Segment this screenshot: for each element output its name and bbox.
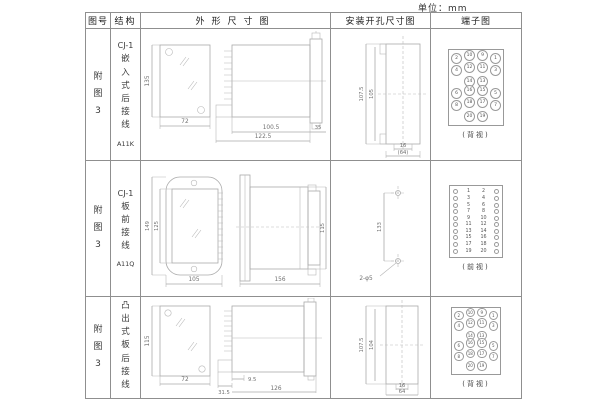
terminal-pin: 1 — [490, 53, 501, 64]
structure-cell-row3: CJ-1 凸出式板后接线 A11H — [111, 297, 141, 398]
dim-install-v2: 104 — [369, 339, 375, 350]
fig-cell-row2: 附图3 — [86, 161, 111, 297]
terminal-row: 14 13 — [454, 331, 498, 341]
terminal-pin: 17 — [477, 349, 487, 359]
terminal-pin: 2 — [451, 53, 462, 64]
fig-number: 附图3 — [92, 69, 105, 120]
terminal-number: 19 — [464, 249, 473, 254]
terminal-pin: 9 — [477, 50, 488, 61]
terminal-number: 9 — [464, 216, 473, 221]
terminal-pin: 16 — [464, 85, 475, 96]
terminal-hole — [453, 249, 458, 254]
terminal-pin: 3 — [489, 321, 499, 331]
terminal-hole — [453, 203, 458, 208]
terminal-row: 6 16 15 5 — [454, 341, 498, 351]
terminal-number: 11 — [464, 222, 473, 227]
dim-side-length: 126 — [270, 386, 281, 392]
terminal-hole — [494, 216, 499, 221]
dim-front-width: 72 — [181, 119, 189, 125]
terminal-row: 4 12 11 3 — [451, 65, 501, 76]
terminal-hole — [453, 189, 458, 194]
terminal-view-label: (背视) — [462, 379, 489, 389]
model-prefix: CJ-1 — [118, 41, 134, 50]
terminal-pin: 4 — [454, 321, 464, 331]
header-fig: 图号 — [86, 13, 111, 29]
terminal-hole — [494, 249, 499, 254]
terminal-row: 2 10 9 1 — [451, 53, 501, 64]
terminal-number: 5 — [464, 203, 473, 208]
terminal-pin: 3 — [490, 65, 501, 76]
terminal-cell-row2: 12 34 56 78 910 1112 1314 1516 1718 1920… — [431, 161, 521, 297]
terminal-pin: 8 — [454, 352, 464, 362]
terminal-hole — [494, 229, 499, 234]
terminal-hole — [453, 209, 458, 214]
terminal-row: 20 19 — [454, 361, 498, 371]
terminal-hole — [453, 242, 458, 247]
terminal-number: 6 — [479, 203, 488, 208]
terminal-pin: 12 — [464, 62, 475, 73]
terminal-pin: 19 — [477, 111, 488, 122]
terminal-row: 1718 — [453, 242, 499, 247]
header-terminal: 端子图 — [431, 13, 521, 29]
terminal-row: 1112 — [453, 222, 499, 227]
dim-install-v2: 105 — [369, 89, 375, 99]
terminal-number: 15 — [464, 235, 473, 240]
dim-side-height: 115 — [320, 223, 326, 233]
terminal-diagram-front: 12 34 56 78 910 1112 1314 1516 1718 1920 — [449, 185, 503, 257]
terminal-number: 18 — [479, 242, 488, 247]
spec-sheet: 单位：mm 图号 结构 外形尺寸图 安装开孔尺寸图 端子图 附图3 CJ-1 嵌… — [0, 0, 600, 400]
terminal-hole — [453, 229, 458, 234]
terminal-number: 8 — [479, 209, 488, 214]
terminal-row: 6 16 15 5 — [451, 88, 501, 99]
install-cell-row3: 107.5 104 16 64 — [331, 297, 431, 398]
dim-front-outer-height: 149 — [145, 221, 151, 231]
terminal-hole — [494, 203, 499, 208]
terminal-hole — [453, 235, 458, 240]
dim-install-v1: 107.5 — [359, 338, 365, 353]
terminal-row: 2 10 9 1 — [454, 311, 498, 321]
model-prefix: CJ-1 — [118, 189, 134, 198]
terminal-view-label: (前视) — [462, 262, 489, 272]
terminal-number: 14 — [479, 229, 488, 234]
install-diagram-row2: 133 2-φ5 — [332, 163, 430, 295]
terminal-pin: 10 — [466, 308, 476, 318]
terminal-pin: 8 — [451, 100, 462, 111]
terminal-hole — [453, 196, 458, 201]
terminal-number: 16 — [479, 235, 488, 240]
terminal-pin: 18 — [466, 349, 476, 359]
dim-front-inner-height: 125 — [154, 221, 160, 231]
dim-side-depth3: 35 — [314, 125, 321, 131]
terminal-pin: 1 — [489, 311, 499, 321]
structure-name: 凸出式板后接线 — [120, 300, 132, 392]
terminal-hole — [494, 189, 499, 194]
terminal-pin: 9 — [477, 308, 487, 318]
structure-cell-row1: CJ-1 嵌入式后接线 A11K — [111, 29, 141, 161]
dim-install-h2: 64 — [398, 389, 405, 395]
terminal-pin: 6 — [454, 341, 464, 351]
install-cell-row1: 107.5 105 16 (64) — [331, 29, 431, 161]
structure-name: 嵌入式后接线 — [120, 53, 132, 132]
terminal-pin: 15 — [477, 338, 487, 348]
terminal-pin: 7 — [489, 352, 499, 362]
dim-front-width: 72 — [181, 377, 189, 383]
terminal-hole — [453, 222, 458, 227]
model-code: A11Q — [117, 260, 135, 268]
terminal-number: 12 — [479, 222, 488, 227]
install-diagram-row1: 107.5 105 16 (64) — [332, 30, 430, 160]
terminal-number: 2 — [479, 189, 488, 194]
terminal-pin: 12 — [466, 318, 476, 328]
outline-diagram-row2: 149 125 105 156 — [142, 163, 330, 295]
terminal-pin: 20 — [464, 111, 475, 122]
terminal-hole — [494, 209, 499, 214]
terminal-pin: 16 — [466, 338, 476, 348]
terminal-view-label: (背视) — [462, 130, 489, 140]
terminal-row: 8 18 17 7 — [451, 100, 501, 111]
terminal-number: 17 — [464, 242, 473, 247]
terminal-number: 13 — [464, 229, 473, 234]
outline-cell-row3: 115 72 9.5 31.5 126 — [141, 297, 331, 398]
terminal-hole — [494, 222, 499, 227]
dim-stud-length: 31.5 — [218, 390, 230, 396]
dim-front-width: 105 — [188, 277, 199, 283]
outline-diagram-row3: 115 72 9.5 31.5 126 — [142, 298, 330, 397]
dim-side-depth2: 122.5 — [254, 134, 271, 140]
terminal-row: 56 — [453, 203, 499, 208]
terminal-row: 20 19 — [451, 111, 501, 122]
terminal-pin: 15 — [477, 85, 488, 96]
dim-install-v1: 107.5 — [359, 86, 365, 101]
header-structure: 结构 — [111, 13, 141, 29]
terminal-pin: 11 — [477, 62, 488, 73]
spec-table: 图号 结构 外形尺寸图 安装开孔尺寸图 端子图 附图3 CJ-1 嵌入式后接线 … — [85, 12, 522, 399]
terminal-row: 4 12 11 3 — [454, 321, 498, 331]
dim-side-length: 156 — [274, 277, 285, 283]
terminal-row: 1516 — [453, 235, 499, 240]
header-outline: 外形尺寸图 — [141, 13, 331, 29]
terminal-row: 14 13 — [451, 76, 501, 87]
terminal-pin: 2 — [454, 311, 464, 321]
terminal-pin: 18 — [464, 97, 475, 108]
dim-front-height: 115 — [145, 335, 151, 346]
terminal-pin: 7 — [490, 100, 501, 111]
terminal-pin: 6 — [451, 88, 462, 99]
terminal-row: 34 — [453, 196, 499, 201]
terminal-pin: 11 — [477, 318, 487, 328]
install-diagram-row3: 107.5 104 16 64 — [332, 298, 430, 397]
terminal-row: 8 18 17 7 — [454, 352, 498, 362]
terminal-row: 910 — [453, 216, 499, 221]
dim-install-h2: (64) — [397, 150, 408, 156]
outline-diagram-row1: 135 72 100.5 122.5 35 — [142, 31, 330, 159]
terminal-pin: 5 — [489, 341, 499, 351]
fig-number: 附图3 — [92, 322, 105, 373]
dim-front-height: 135 — [145, 75, 151, 86]
terminal-pin: 17 — [477, 97, 488, 108]
model-code: A11K — [117, 140, 134, 148]
terminal-pin: 20 — [466, 361, 476, 371]
terminal-number: 4 — [479, 196, 488, 201]
terminal-pin: 5 — [490, 88, 501, 99]
terminal-pin: 19 — [477, 361, 487, 371]
terminal-number: 7 — [464, 209, 473, 214]
fig-number: 附图3 — [92, 203, 105, 254]
terminal-hole — [494, 235, 499, 240]
terminal-diagram-rear: 2 10 9 1 4 12 11 3 14 13 6 16 — [451, 307, 501, 375]
header-install: 安装开孔尺寸图 — [331, 13, 431, 29]
fig-cell-row3: 附图3 — [86, 297, 111, 398]
outline-cell-row2: 149 125 105 156 — [141, 161, 331, 297]
terminal-cell-row3: 2 10 9 1 4 12 11 3 14 13 6 16 — [431, 297, 521, 398]
terminal-hole — [453, 216, 458, 221]
terminal-pin: 4 — [451, 65, 462, 76]
terminal-row: 78 — [453, 209, 499, 214]
install-cell-row2: 133 2-φ5 — [331, 161, 431, 297]
terminal-row: 1920 — [453, 249, 499, 254]
terminal-number: 10 — [479, 216, 488, 221]
structure-name: 板前接线 — [120, 201, 132, 254]
terminal-row: 1314 — [453, 229, 499, 234]
terminal-hole — [494, 196, 499, 201]
dim-install-v: 133 — [377, 222, 383, 232]
terminal-number: 3 — [464, 196, 473, 201]
fig-cell-row1: 附图3 — [86, 29, 111, 161]
terminal-cell-row1: 2 10 9 1 4 12 11 3 14 13 6 16 — [431, 29, 521, 161]
terminal-number: 1 — [464, 189, 473, 194]
dim-side-depth1: 100.5 — [262, 125, 279, 131]
hole-spec-label: 2-φ5 — [359, 276, 373, 282]
dim-install-h1: 16 — [399, 143, 406, 149]
terminal-pin: 10 — [464, 50, 475, 61]
structure-cell-row2: CJ-1 板前接线 A11Q — [111, 161, 141, 297]
terminal-hole — [494, 242, 499, 247]
outline-cell-row1: 135 72 100.5 122.5 35 — [141, 29, 331, 161]
terminal-number: 20 — [479, 249, 488, 254]
dim-pin-offset: 9.5 — [248, 377, 256, 383]
terminal-diagram-rear: 2 10 9 1 4 12 11 3 14 13 6 16 — [448, 49, 504, 126]
terminal-row: 12 — [453, 189, 499, 194]
